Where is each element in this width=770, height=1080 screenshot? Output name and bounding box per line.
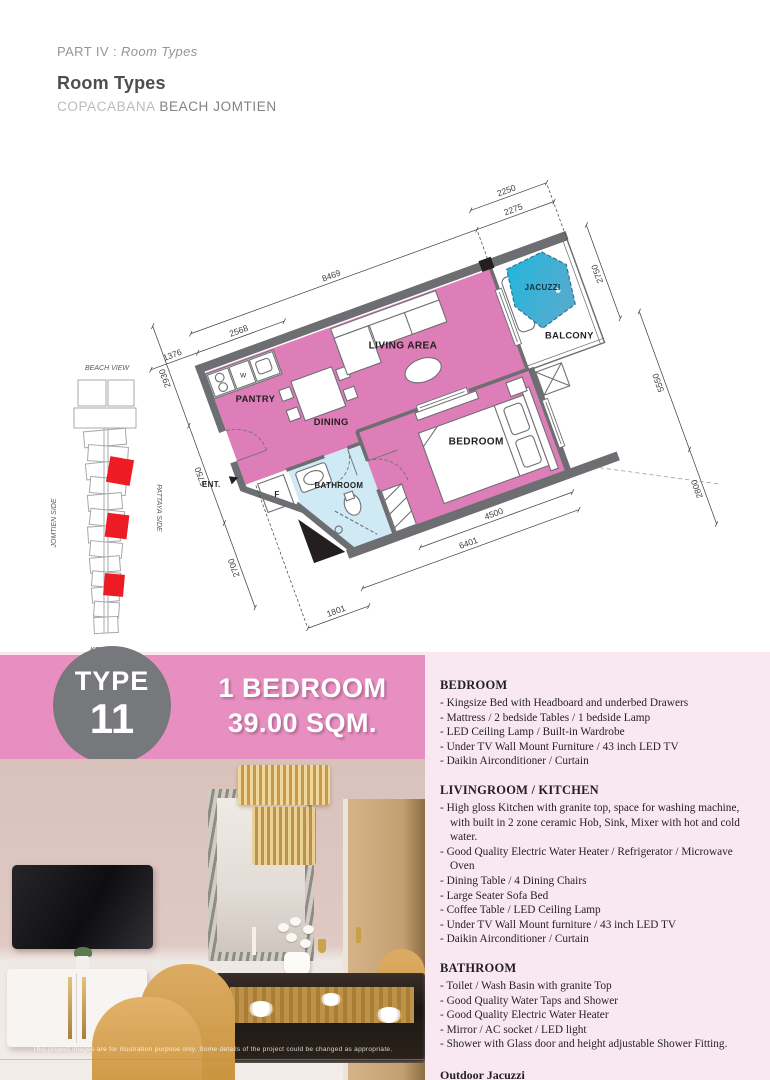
dim-bottom-mid: 6401 bbox=[458, 535, 480, 551]
dim-right-balcony: 2750 bbox=[589, 263, 605, 285]
spec-footnote: Outdoor Jacuzzi bbox=[440, 1068, 758, 1080]
part-label-italic: Room Types bbox=[121, 44, 198, 59]
spec-item: - High gloss Kitchen with granite top, s… bbox=[440, 801, 758, 845]
bathroom-label: BATHROOM bbox=[314, 481, 363, 490]
spec-item: - LED Ceiling Lamp / Built-in Wardrobe bbox=[440, 725, 758, 740]
dim-bottom-left: 1801 bbox=[325, 603, 347, 619]
spec-item: - Good Quality Water Taps and Shower bbox=[440, 994, 758, 1009]
spec-heading-bedroom: BEDROOM bbox=[440, 678, 758, 693]
dim-top-outer: 2250 bbox=[496, 182, 518, 198]
floor-line bbox=[0, 1059, 425, 1060]
dining-label: DINING bbox=[314, 417, 349, 427]
pattaya-side-label: PATTAYA SIDE bbox=[155, 484, 162, 532]
bedroom-label: BEDROOM bbox=[449, 436, 504, 447]
spec-item: - Daikin Airconditioner / Curtain bbox=[440, 754, 758, 769]
spec-heading-bathroom: BATHROOM bbox=[440, 961, 758, 976]
jacuzzi-label: JACUZZI bbox=[525, 283, 561, 292]
candlestick bbox=[252, 927, 256, 955]
spec-item: - Shower with Glass door and height adju… bbox=[440, 1037, 758, 1052]
spec-item: - Under TV Wall Mount furniture / 43 inc… bbox=[440, 918, 758, 933]
dim-top-living: 2275 bbox=[502, 201, 524, 217]
spec-heading-livingroom: LIVINGROOM / KITCHEN bbox=[440, 783, 758, 798]
chandelier-lower-tier bbox=[252, 807, 316, 865]
spec-item: - Mattress / 2 bedside Tables / 1 bedsid… bbox=[440, 711, 758, 726]
dim-right-low: 2800 bbox=[689, 478, 705, 500]
living-label: LIVING AREA bbox=[369, 340, 438, 351]
entrance-label: ENT. bbox=[202, 480, 221, 489]
spec-item: - Daikin Airconditioner / Curtain bbox=[440, 932, 758, 947]
door-handle bbox=[356, 927, 361, 943]
keyplan-highlighted-units bbox=[103, 456, 134, 597]
part-label: PART IV : Room Types bbox=[57, 44, 277, 59]
dim-left-low: 2700 bbox=[226, 557, 242, 579]
balcony-label: BALCONY bbox=[545, 330, 594, 340]
spec-item: - Toilet / Wash Basin with granite Top bbox=[440, 979, 758, 994]
plant-pot bbox=[76, 956, 89, 969]
type-badge: TYPE 11 bbox=[53, 646, 171, 764]
wall-tv bbox=[12, 865, 153, 949]
spec-item: - Mirror / AC socket / LED light bbox=[440, 1023, 758, 1038]
dim-top-main: 8469 bbox=[320, 268, 342, 284]
plate bbox=[320, 993, 342, 1006]
brochure-page: PART IV : Room Types Room Types COPACABA… bbox=[0, 0, 770, 1080]
pantry-label: PANTRY bbox=[236, 394, 276, 404]
cabinet-handle bbox=[68, 977, 72, 1039]
spec-item: - Large Seater Sofa Bed bbox=[440, 889, 758, 904]
spec-item: - Dining Table / 4 Dining Chairs bbox=[440, 874, 758, 889]
chandelier bbox=[238, 765, 330, 805]
specs-column: BEDROOM - Kingsize Bed with Headboard an… bbox=[440, 678, 758, 1080]
type-title: 1 BEDROOM 39.00 SQM. bbox=[195, 671, 410, 741]
washer-label: W bbox=[240, 372, 247, 379]
type-title-line1: 1 BEDROOM bbox=[195, 671, 410, 706]
spec-item: - Coffee Table / LED Ceiling Lamp bbox=[440, 903, 758, 918]
plate bbox=[376, 1007, 402, 1023]
dining-chair bbox=[92, 997, 202, 1080]
type-title-line2: 39.00 SQM. bbox=[195, 706, 410, 741]
type-badge-label: TYPE bbox=[53, 666, 171, 697]
spec-item: - Good Quality Electric Water Heater / R… bbox=[440, 845, 758, 874]
orchid-flowers bbox=[276, 917, 322, 957]
keyplan: BEACH VIEW KEY PLAN JOMTIEN SIDE PATTAYA… bbox=[42, 358, 172, 658]
dim-right-mid: 5550 bbox=[650, 372, 666, 394]
interior-photo: This project images are for illustration… bbox=[0, 759, 425, 1080]
spec-item: - Kingsize Bed with Headboard and underb… bbox=[440, 696, 758, 711]
cabinet-handle bbox=[82, 977, 86, 1039]
type-section: 1 BEDROOM 39.00 SQM. TYPE 11 bbox=[0, 652, 770, 1080]
dim-top-pantry: 2568 bbox=[228, 323, 250, 339]
type-badge-number: 11 bbox=[53, 697, 171, 741]
cabinet-seam bbox=[76, 973, 77, 1043]
spec-item: - Good Quality Electric Water Heater bbox=[440, 1008, 758, 1023]
jomtien-side-label: JOMTIEN SIDE bbox=[51, 498, 58, 548]
spec-item: - Under TV Wall Mount Furniture / 43 inc… bbox=[440, 740, 758, 755]
beach-view-label: BEACH VIEW bbox=[85, 365, 130, 372]
keyplan-building bbox=[74, 380, 136, 634]
plate bbox=[248, 1001, 274, 1017]
fridge-label: F bbox=[274, 490, 279, 499]
photo-disclaimer: This project images are for illustration… bbox=[21, 1046, 404, 1053]
